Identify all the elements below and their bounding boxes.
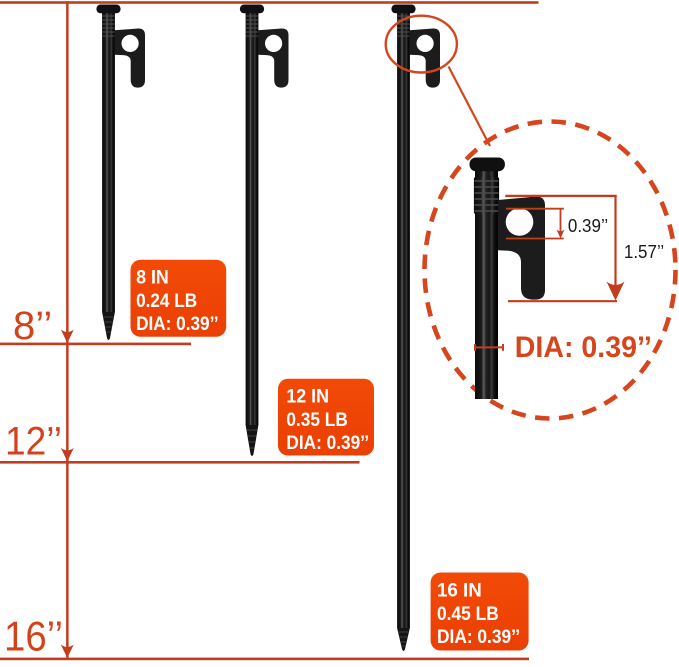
svg-text:0.39’’: 0.39’’ (568, 216, 608, 236)
svg-text:12’’: 12’’ (5, 420, 62, 464)
svg-text:DIA: 0.39’’: DIA: 0.39’’ (136, 313, 218, 335)
svg-text:DIA: 0.39’’: DIA: 0.39’’ (286, 432, 369, 454)
svg-text:0.45 LB: 0.45 LB (437, 603, 499, 625)
svg-text:DIA: 0.39’’: DIA: 0.39’’ (437, 626, 520, 648)
svg-text:0.24 LB: 0.24 LB (136, 290, 197, 312)
svg-text:16’’: 16’’ (4, 612, 63, 659)
svg-text:8 IN: 8 IN (136, 266, 169, 288)
svg-text:16 IN: 16 IN (437, 580, 482, 602)
svg-text:1.57’’: 1.57’’ (624, 242, 664, 262)
svg-text:0.35 LB: 0.35 LB (286, 409, 347, 431)
svg-text:8’’: 8’’ (13, 304, 52, 348)
svg-text:12 IN: 12 IN (286, 385, 329, 407)
svg-text:DIA: 0.39’’: DIA: 0.39’’ (515, 331, 652, 364)
